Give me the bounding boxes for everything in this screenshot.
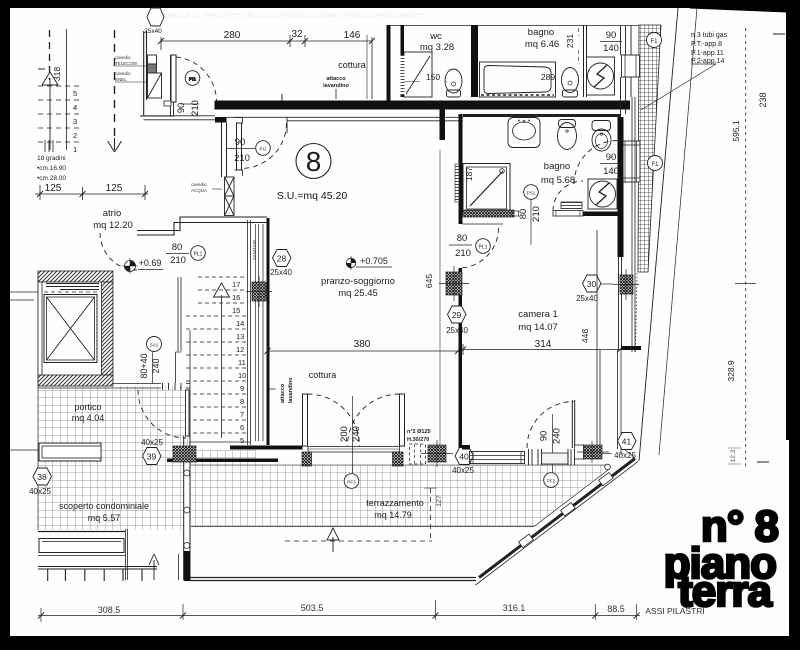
svg-text:mq 4.04: mq 4.04 [72,413,105,423]
svg-text:80: 80 [172,242,183,253]
svg-text:wc: wc [429,31,442,42]
svg-text:210: 210 [170,255,186,266]
svg-text:PL1: PL1 [479,245,488,251]
svg-text:17: 17 [232,280,240,289]
svg-text:cottura: cottura [309,370,337,380]
svg-text:210: 210 [531,206,542,222]
svg-text:140: 140 [603,166,619,177]
svg-text:3: 3 [73,117,77,126]
svg-text:88.5: 88.5 [607,604,625,614]
svg-text:14: 14 [236,319,244,328]
svg-text:mq 6.46: mq 6.46 [525,39,559,50]
svg-text:38: 38 [37,472,47,482]
svg-text:cavedio: cavedio [115,71,131,76]
svg-text:mq 5.68: mq 5.68 [541,175,575,186]
svg-text:90: 90 [606,30,617,41]
svg-text:25x40: 25x40 [576,294,598,303]
svg-text:bagno: bagno [544,161,570,172]
svg-text:210: 210 [234,153,250,164]
svg-text:40: 40 [459,452,469,462]
svg-text:cavedio: cavedio [191,182,207,187]
svg-text:cavedio: cavedio [115,55,131,60]
svg-text:645: 645 [424,274,434,288]
svg-text:mq 14.07: mq 14.07 [518,322,558,333]
svg-text:SA1: SA1 [150,343,159,348]
svg-text:11: 11 [238,358,246,367]
svg-text:25x40: 25x40 [446,326,468,335]
svg-text:mq 5.57: mq 5.57 [88,513,121,523]
svg-text:16: 16 [232,293,240,302]
svg-text:29: 29 [452,310,462,320]
svg-text:+0.69: +0.69 [139,258,162,268]
svg-text:595.1: 595.1 [731,120,741,142]
svg-text:•cm.16.90: •cm.16.90 [37,165,66,172]
svg-text:1: 1 [73,145,77,154]
svg-text:5: 5 [240,436,244,445]
svg-text:80+40: 80+40 [139,353,149,378]
svg-text:P.1-app.11: P.1-app.11 [691,50,724,57]
svg-text:lavandino: lavandino [323,83,349,89]
svg-text:PI1: PI1 [189,77,196,82]
svg-text:40x25: 40x25 [29,487,51,496]
svg-text:PI1: PI1 [260,147,267,152]
svg-text:30: 30 [587,279,597,289]
svg-text:F1: F1 [651,162,659,168]
svg-text:210: 210 [455,248,471,259]
svg-text:231: 231 [565,34,575,48]
svg-text:bagno: bagno [528,27,554,38]
svg-text:318: 318 [52,67,62,81]
svg-text:448: 448 [580,329,590,343]
svg-text:ENEL: ENEL [115,77,127,82]
svg-text:attacco: attacco [280,383,286,403]
svg-text:P.T.-app.8: P.T.-app.8 [691,41,722,48]
svg-text:18 gradini: 18 gradini [37,155,66,162]
svg-text:140: 140 [603,43,619,54]
svg-text:pranzo-soggiorno: pranzo-soggiorno [321,276,395,287]
svg-text:terra: terra [678,567,772,616]
svg-text:10: 10 [238,371,246,380]
svg-text:camera 1: camera 1 [518,309,558,320]
svg-text:mq 14.79: mq 14.79 [374,510,412,520]
svg-text:mq 3.28: mq 3.28 [420,42,454,53]
svg-text:S.U.=mq 45.20: S.U.=mq 45.20 [277,190,347,202]
svg-text:•cm.28.00: •cm.28.00 [37,175,66,182]
svg-text:2: 2 [73,131,77,140]
svg-text:COMUNE DI - PROGETTO EDILIZI: COMUNE DI - PROGETTO EDILIZIO RESIDENZA … [160,13,426,20]
svg-text:PS1: PS1 [527,191,536,196]
svg-text:scoperto condominiale: scoperto condominiale [59,501,149,511]
svg-text:15: 15 [232,306,240,315]
svg-text:32: 32 [291,29,303,40]
svg-text:12: 12 [236,345,244,354]
svg-text:terrazzamento: terrazzamento [366,498,424,508]
svg-text:PF2: PF2 [547,479,556,484]
svg-text:125: 125 [45,183,62,194]
svg-text:SANITARI: SANITARI [252,240,257,260]
svg-text:portico: portico [74,402,101,412]
svg-text:90: 90 [539,431,550,442]
svg-text:146: 146 [344,30,361,41]
svg-text:6: 6 [240,423,244,432]
svg-text:90: 90 [235,137,246,148]
svg-text:H.30/270: H.30/270 [407,437,429,443]
svg-text:attacco: attacco [326,76,346,82]
svg-text:n°2 Ø125: n°2 Ø125 [407,429,431,435]
svg-text:187: 187 [464,167,474,181]
svg-text:12.3: 12.3 [730,449,737,462]
svg-text:503.5: 503.5 [301,603,324,613]
svg-text:238: 238 [758,92,768,107]
svg-text:TELECOM: TELECOM [115,61,137,66]
svg-text:4: 4 [73,103,77,112]
svg-text:28: 28 [277,254,287,264]
svg-text:n.3 tubi gas: n.3 tubi gas [691,32,728,39]
svg-text:cottura: cottura [338,60,366,70]
svg-text:289: 289 [541,72,555,82]
svg-text:80: 80 [518,209,529,220]
svg-text:314: 314 [535,339,552,350]
svg-text:240: 240 [552,428,563,444]
svg-text:F1: F1 [650,39,658,45]
svg-text:40x25: 40x25 [141,438,163,447]
svg-text:PL1: PL1 [194,252,203,258]
svg-text:8: 8 [306,146,322,177]
svg-text:328.9: 328.9 [726,360,736,382]
svg-text:380: 380 [354,339,371,350]
svg-text:7: 7 [240,410,244,419]
svg-text:9: 9 [240,384,244,393]
svg-text:mq 25.45: mq 25.45 [338,288,378,299]
svg-text:atrio: atrio [103,208,121,219]
svg-text:150: 150 [426,72,440,82]
svg-text:80: 80 [457,233,468,244]
svg-text:5: 5 [73,89,77,98]
svg-text:25x40: 25x40 [270,268,292,277]
svg-text:308.5: 308.5 [98,605,121,615]
svg-text:ACQUA: ACQUA [191,188,207,193]
svg-text:lavandino: lavandino [288,377,294,403]
svg-text:8: 8 [240,397,244,406]
svg-text:41: 41 [622,437,632,447]
svg-text:39: 39 [147,452,157,462]
svg-text:mq 12.20: mq 12.20 [93,220,133,231]
svg-text:40x25: 40x25 [452,466,474,475]
svg-text:280: 280 [224,30,241,41]
svg-text:13: 13 [236,332,244,341]
svg-text:90: 90 [606,152,617,163]
svg-text:127: 127 [436,495,443,507]
svg-text:PF3: PF3 [347,480,356,485]
svg-text:+0.705: +0.705 [360,256,388,266]
svg-text:210: 210 [190,100,201,116]
svg-text:125: 125 [106,183,123,194]
svg-text:200: 200 [339,426,350,442]
svg-text:316.1: 316.1 [503,603,526,613]
